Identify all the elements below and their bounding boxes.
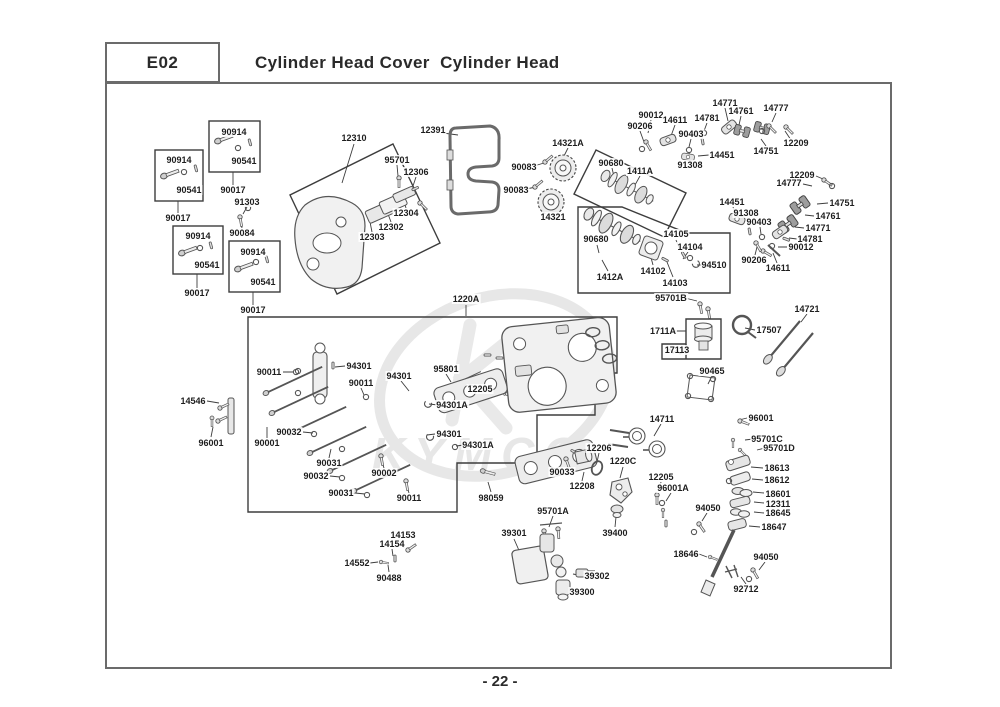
camshaft-1-drawing	[597, 165, 658, 210]
valve-drawing	[762, 319, 803, 366]
cylinder-head-cover-drawing	[295, 176, 429, 289]
valve-guide-drawing	[666, 301, 712, 355]
rocker-arm-cluster-top	[639, 119, 794, 161]
cover-bolt-sets	[160, 133, 269, 273]
rocker-arm-cluster-right	[728, 177, 834, 258]
cover-gasket-drawing	[450, 126, 499, 214]
chain-tensioner-drawing	[295, 343, 334, 404]
parts-catalog-page: E02 Cylinder Head Cover Cylinder Head KY…	[0, 0, 1000, 707]
cam-sprockets	[532, 154, 576, 215]
cylinder-head-drawing	[501, 316, 621, 413]
stud-plate-drawing	[210, 398, 234, 434]
page-number: - 22 -	[0, 673, 1000, 690]
gasket-grommet	[447, 180, 453, 190]
exploded-parts-diagram: KYMCO	[0, 0, 1000, 707]
sensor-assembly-drawing	[511, 523, 595, 600]
camshaft-2-drawing	[580, 202, 645, 250]
stud-set-drawing	[685, 373, 715, 401]
small-hardware	[379, 468, 496, 565]
stud-96001	[737, 418, 749, 426]
valve-drawing	[775, 331, 816, 378]
bolt-group-box	[209, 121, 260, 172]
valve-clamp-drawing	[733, 316, 756, 338]
rocker-stack-drawing	[701, 438, 760, 596]
gasket-grommet	[447, 150, 453, 160]
cam-bearing-parts	[638, 235, 700, 268]
